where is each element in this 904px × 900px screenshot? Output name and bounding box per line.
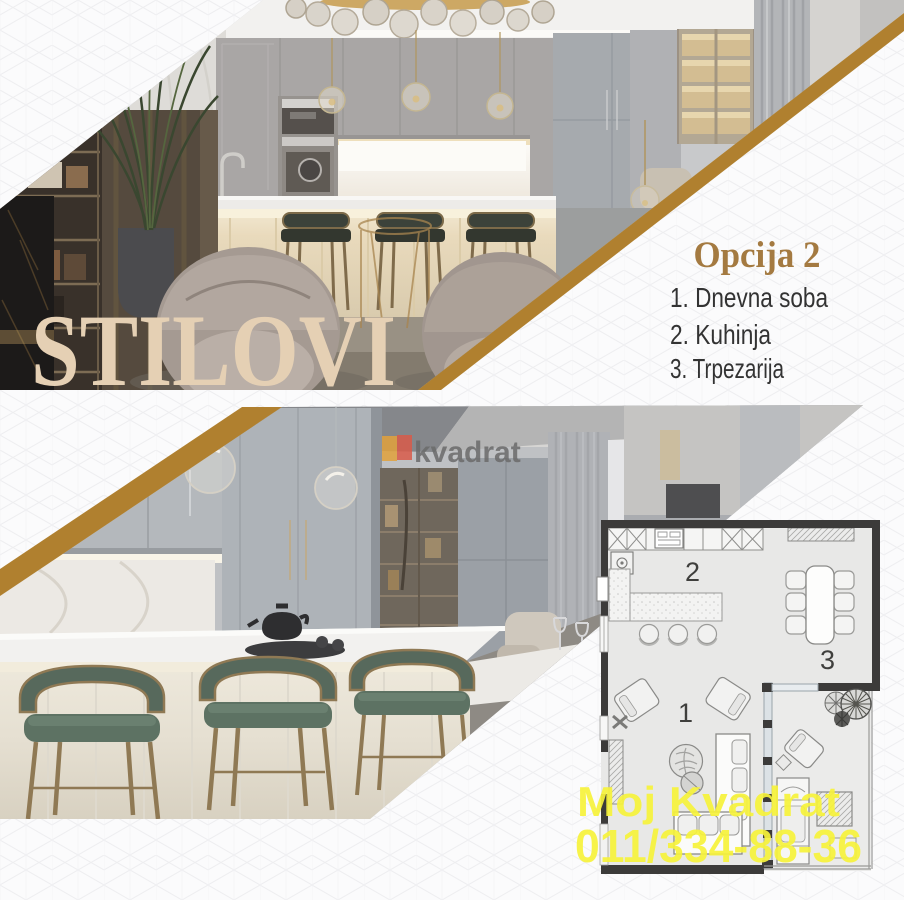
svg-text:1. Dnevna soba: 1. Dnevna soba [670,282,829,313]
svg-text:011/334-88-36: 011/334-88-36 [575,820,862,872]
svg-text:3. Trpezarija: 3. Trpezarija [670,353,785,384]
svg-text:2. Kuhinja: 2. Kuhinja [670,319,772,350]
svg-text:Opcija 2: Opcija 2 [694,235,821,276]
svg-text:2: 2 [685,557,700,587]
svg-text:1: 1 [678,698,693,728]
svg-text:Moj Kvadrat: Moj Kvadrat [577,778,840,825]
svg-text:STILOVI: STILOVI [31,294,396,408]
svg-text:kvadrat: kvadrat [414,436,521,469]
svg-text:3: 3 [820,645,835,675]
